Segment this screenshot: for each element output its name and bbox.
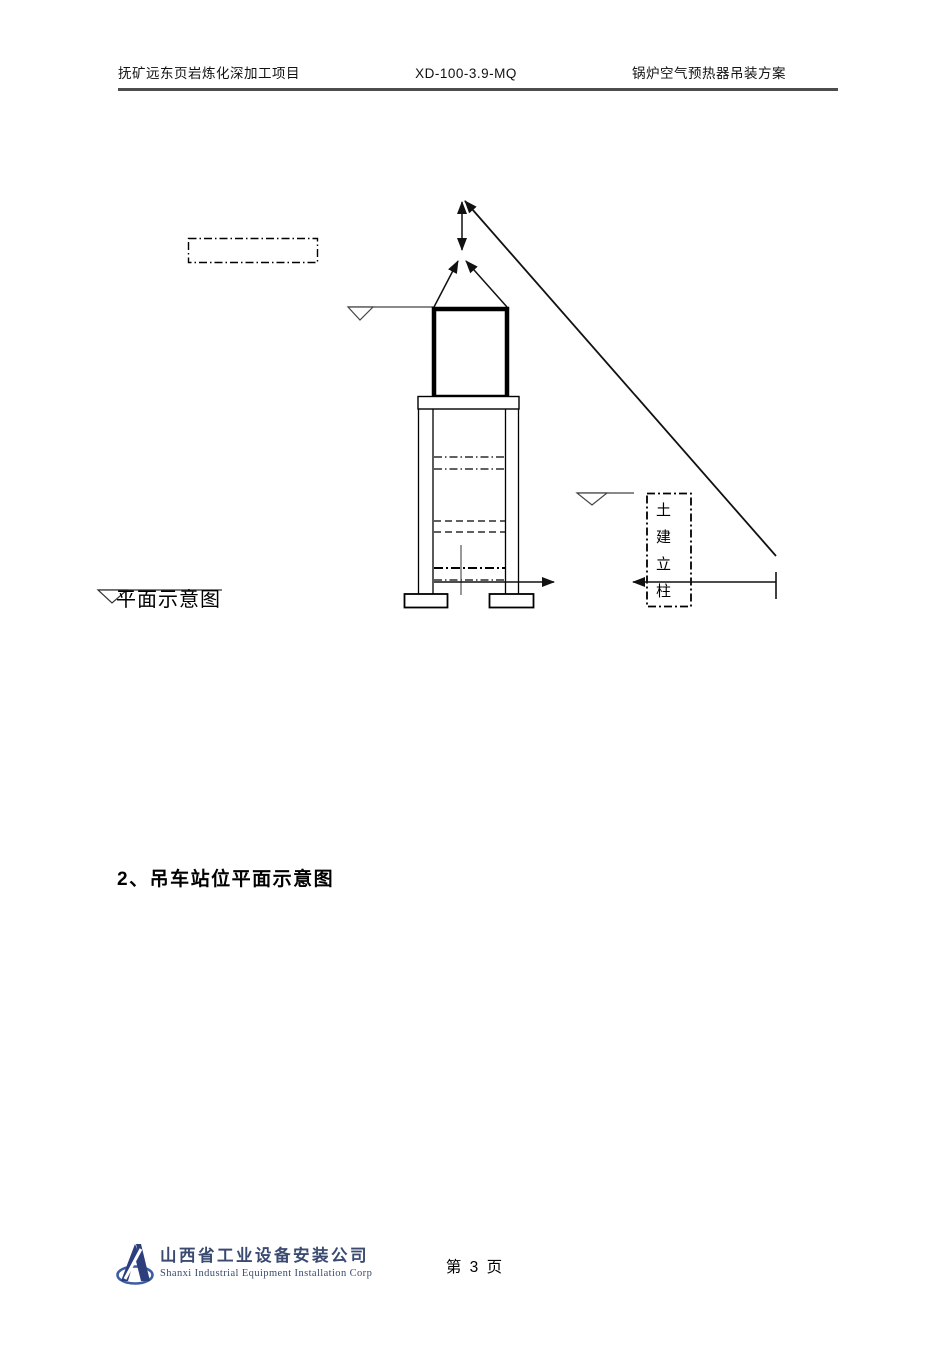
load-box <box>434 309 507 397</box>
boom-line <box>465 201 776 556</box>
platform-slab <box>418 397 519 410</box>
page-number: 第 3 页 <box>0 1255 950 1277</box>
support-columns <box>419 409 519 594</box>
footings <box>405 594 534 608</box>
section-heading: 2、吊车站位平面示意图 <box>117 864 334 891</box>
diagram-caption: 平面示意图 <box>116 583 221 612</box>
document-page: 抚矿远东页岩炼化深加工项目 XD-100-3.9-MQ 锅炉空气预热器吊装方案 <box>0 0 950 1345</box>
annotation-box-empty <box>189 239 318 263</box>
sling-lines <box>434 261 507 307</box>
level-marker-top <box>348 307 434 320</box>
civil-column-label: 土建立柱 <box>654 502 670 610</box>
level-marker-ground <box>577 493 634 505</box>
frame-hidden-lines <box>434 457 506 580</box>
